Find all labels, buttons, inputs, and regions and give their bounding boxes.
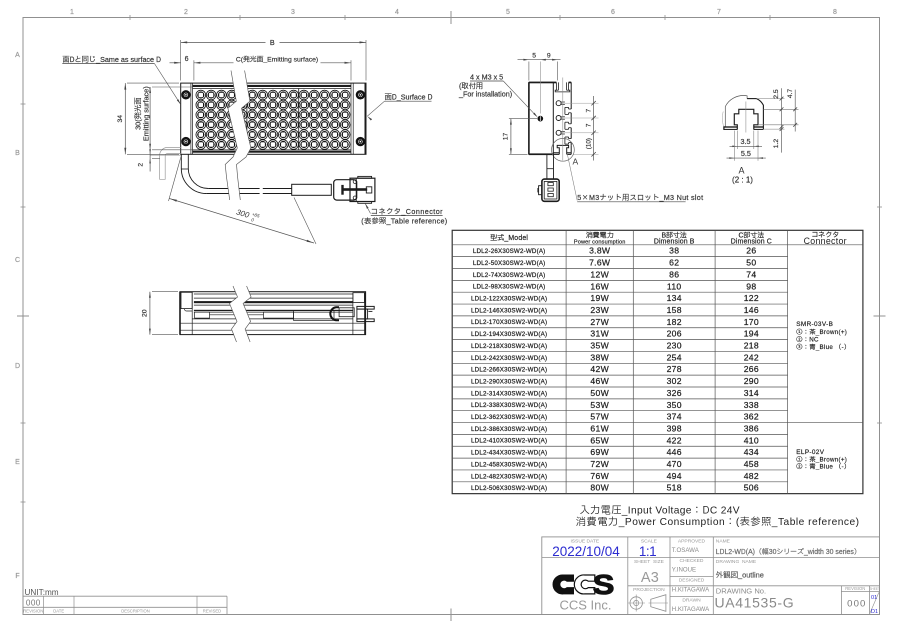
- svg-text:(10): (10): [586, 138, 593, 149]
- svg-text:UA41535-G: UA41535-G: [715, 595, 795, 611]
- svg-text:19W: 19W: [590, 293, 609, 303]
- svg-text:LDL2-74X30SW2-WD(A): LDL2-74X30SW2-WD(A): [473, 272, 546, 279]
- svg-text:LDL2-290X30SW2-WD(A): LDL2-290X30SW2-WD(A): [471, 378, 547, 385]
- svg-text:3.5: 3.5: [741, 137, 751, 146]
- svg-text:Dimension C: Dimension C: [731, 239, 772, 246]
- svg-text:消費電力_Power Consumption：(表参照_Ta: 消費電力_Power Consumption：(表参照_Table refere…: [576, 515, 860, 530]
- svg-text:5×M3ナット用スロット_M3 Nut slot: 5×M3ナット用スロット_M3 Nut slot: [577, 193, 703, 204]
- svg-text:266: 266: [744, 364, 759, 374]
- svg-text:②：青_Blue （-）: ②：青_Blue （-）: [796, 461, 850, 471]
- svg-text:LDL2-218X30SW2-WD(A): LDL2-218X30SW2-WD(A): [471, 343, 547, 350]
- svg-text:7.6W: 7.6W: [589, 258, 611, 268]
- svg-text:5.5: 5.5: [741, 149, 751, 158]
- svg-text:4: 4: [395, 9, 399, 16]
- svg-text:194: 194: [744, 329, 759, 339]
- svg-text:110: 110: [667, 281, 682, 291]
- svg-text:Emitting surface): Emitting surface): [141, 86, 150, 141]
- svg-text:410: 410: [744, 435, 759, 445]
- svg-text:7: 7: [585, 108, 592, 112]
- svg-text:326: 326: [667, 388, 682, 398]
- svg-text:T.OSAWA: T.OSAWA: [672, 547, 700, 554]
- svg-text:134: 134: [667, 293, 682, 303]
- svg-text:A3: A3: [641, 570, 659, 586]
- svg-text:2: 2: [137, 163, 144, 167]
- svg-text:DATE: DATE: [53, 609, 64, 614]
- svg-text:1: 1: [70, 9, 74, 16]
- svg-text:CCS Inc.: CCS Inc.: [559, 597, 611, 612]
- svg-text:434: 434: [744, 447, 759, 457]
- svg-text:C: C: [15, 257, 20, 264]
- svg-text:290: 290: [744, 376, 759, 386]
- svg-text:57W: 57W: [590, 412, 609, 422]
- svg-text:1.2: 1.2: [773, 139, 780, 149]
- svg-text:8: 8: [833, 9, 837, 16]
- svg-text:278: 278: [667, 364, 682, 374]
- svg-text:A: A: [738, 166, 744, 176]
- svg-text:APPROVED: APPROVED: [678, 538, 706, 544]
- svg-text:5: 5: [532, 52, 536, 59]
- svg-text:01: 01: [871, 595, 877, 601]
- svg-text:DRAWN: DRAWN: [682, 598, 701, 604]
- svg-text:23W: 23W: [590, 305, 609, 315]
- svg-text:LDL2-434X30SW2-WD(A): LDL2-434X30SW2-WD(A): [471, 450, 547, 457]
- svg-text:16W: 16W: [590, 281, 609, 291]
- svg-text:3.8W: 3.8W: [589, 246, 611, 256]
- svg-text:Y.INOUE: Y.INOUE: [672, 567, 696, 574]
- svg-text:000: 000: [26, 599, 41, 608]
- svg-text:27W: 27W: [590, 317, 609, 327]
- svg-text:6: 6: [611, 9, 615, 16]
- svg-text:362: 362: [744, 412, 759, 422]
- svg-text:LDL2-26X30SW2-WD(A): LDL2-26X30SW2-WD(A): [473, 248, 546, 255]
- svg-text:1:1: 1:1: [639, 544, 656, 559]
- svg-text:302: 302: [667, 376, 682, 386]
- svg-text:38W: 38W: [590, 352, 609, 362]
- svg-text:122: 122: [744, 293, 759, 303]
- svg-text:53W: 53W: [590, 400, 609, 410]
- svg-text:LDL2-458X30SW2-WD(A): LDL2-458X30SW2-WD(A): [471, 461, 547, 468]
- svg-text:69W: 69W: [590, 447, 609, 457]
- svg-text:Dimension B: Dimension B: [654, 239, 695, 246]
- svg-text:H.KITAGAWA: H.KITAGAWA: [672, 587, 710, 594]
- svg-text:6: 6: [185, 56, 189, 63]
- svg-text:DESCRIPTION: DESCRIPTION: [121, 609, 150, 614]
- svg-text:SHEET: SHEET: [869, 587, 880, 591]
- svg-text:482: 482: [744, 471, 759, 481]
- svg-text:170: 170: [744, 317, 759, 327]
- svg-text:LDL2-338X30SW2-WD(A): LDL2-338X30SW2-WD(A): [471, 402, 547, 409]
- svg-text:146: 146: [744, 305, 759, 315]
- svg-text:LDL2-482X30SW2-WD(A): LDL2-482X30SW2-WD(A): [471, 473, 547, 480]
- svg-text:17: 17: [502, 133, 509, 141]
- svg-text:_For installation): _For installation): [458, 90, 512, 101]
- svg-text:206: 206: [667, 329, 682, 339]
- svg-text:242: 242: [744, 352, 759, 362]
- svg-text:374: 374: [667, 412, 682, 422]
- svg-text:31W: 31W: [590, 329, 609, 339]
- svg-text:518: 518: [667, 483, 682, 493]
- svg-text:422: 422: [667, 435, 682, 445]
- svg-text:LDL2-314X30SW2-WD(A): LDL2-314X30SW2-WD(A): [471, 390, 547, 397]
- svg-text:350: 350: [667, 400, 682, 410]
- svg-text:REVISION: REVISION: [845, 586, 865, 591]
- svg-text:LDL2-WD(A)（幅30シリーズ_width 30 se: LDL2-WD(A)（幅30シリーズ_width 30 series）: [716, 548, 861, 558]
- svg-text:218: 218: [744, 341, 759, 351]
- svg-text:46W: 46W: [590, 376, 609, 386]
- svg-text:61W: 61W: [590, 423, 609, 433]
- svg-text:E: E: [15, 459, 20, 466]
- svg-text:230: 230: [667, 341, 682, 351]
- svg-text:DESIGNED: DESIGNED: [679, 578, 705, 584]
- svg-text:REVISED: REVISED: [203, 609, 221, 614]
- svg-text:LDL2-362X30SW2-WD(A): LDL2-362X30SW2-WD(A): [471, 414, 547, 421]
- svg-text:458: 458: [744, 459, 759, 469]
- svg-text:65W: 65W: [590, 435, 609, 445]
- svg-text:Connector: Connector: [804, 236, 847, 246]
- svg-text:A: A: [572, 157, 578, 167]
- svg-text:REVISION: REVISION: [23, 609, 43, 614]
- svg-text:386: 386: [744, 423, 759, 433]
- svg-text:LDL2-506X30SW2-WD(A): LDL2-506X30SW2-WD(A): [471, 485, 547, 492]
- svg-text:H.KITAGAWA: H.KITAGAWA: [672, 606, 710, 613]
- svg-text:CHECKED: CHECKED: [680, 558, 704, 564]
- svg-text:158: 158: [667, 305, 682, 315]
- svg-text:470: 470: [667, 459, 682, 469]
- svg-text:Power consumption: Power consumption: [574, 239, 626, 245]
- svg-text:SHEET SIZE: SHEET SIZE: [634, 559, 665, 565]
- svg-text:B: B: [270, 38, 275, 47]
- svg-text:(2 : 1): (2 : 1): [732, 176, 753, 185]
- svg-text:③：青_Blue （-）: ③：青_Blue （-）: [796, 342, 850, 352]
- svg-text:2.5: 2.5: [773, 89, 780, 99]
- svg-text:4.7: 4.7: [787, 89, 794, 99]
- svg-text:LDL2-386X30SW2-WD(A): LDL2-386X30SW2-WD(A): [471, 426, 547, 433]
- svg-text:LDL2-410X30SW2-WD(A): LDL2-410X30SW2-WD(A): [471, 438, 547, 445]
- svg-text:74: 74: [746, 269, 756, 279]
- svg-text:(表参照_Table reference): (表参照_Table reference): [361, 216, 447, 227]
- svg-text:3: 3: [291, 9, 295, 16]
- svg-text:35W: 35W: [590, 341, 609, 351]
- svg-text:PROJECTION: PROJECTION: [633, 587, 665, 593]
- svg-text:LDL2-50X30SW2-WD(A): LDL2-50X30SW2-WD(A): [473, 260, 546, 267]
- svg-text:D: D: [15, 363, 20, 370]
- svg-text:26: 26: [746, 246, 756, 256]
- svg-text:7: 7: [717, 9, 721, 16]
- svg-text:面Dと同じ_Same as surface D: 面Dと同じ_Same as surface D: [62, 55, 161, 66]
- svg-text:5: 5: [506, 9, 510, 16]
- svg-text:7: 7: [585, 123, 592, 127]
- svg-text:000: 000: [847, 599, 866, 610]
- svg-text:2022/10/04: 2022/10/04: [552, 544, 620, 559]
- svg-text:型式_Model: 型式_Model: [490, 234, 528, 244]
- svg-text:72W: 72W: [590, 459, 609, 469]
- svg-text:80W: 80W: [590, 483, 609, 493]
- svg-text:50W: 50W: [590, 388, 609, 398]
- svg-text:182: 182: [667, 317, 682, 327]
- svg-text:50: 50: [746, 258, 756, 268]
- svg-text:LDL2-146X30SW2-WD(A): LDL2-146X30SW2-WD(A): [471, 307, 547, 314]
- svg-text:76W: 76W: [590, 471, 609, 481]
- svg-text:LDL2-170X30SW2-WD(A): LDL2-170X30SW2-WD(A): [471, 319, 547, 326]
- svg-text:506: 506: [744, 483, 759, 493]
- svg-text:D1: D1: [871, 609, 878, 615]
- svg-text:42W: 42W: [590, 364, 609, 374]
- svg-text:UNIT:mm: UNIT:mm: [25, 588, 59, 597]
- svg-text:LDL2-242X30SW2-WD(A): LDL2-242X30SW2-WD(A): [471, 355, 547, 362]
- svg-text:38: 38: [669, 246, 679, 256]
- svg-text:DRAWING NAME: DRAWING NAME: [716, 559, 757, 565]
- svg-text:B: B: [15, 150, 20, 157]
- svg-text:398: 398: [667, 423, 682, 433]
- svg-text:20: 20: [142, 309, 149, 317]
- svg-text:S: S: [593, 570, 615, 600]
- svg-text:LDL2-266X30SW2-WD(A): LDL2-266X30SW2-WD(A): [471, 367, 547, 374]
- svg-text:338: 338: [744, 400, 759, 410]
- svg-text:9: 9: [547, 52, 551, 59]
- svg-text:LDL2-122X30SW2-WD(A): LDL2-122X30SW2-WD(A): [471, 296, 547, 303]
- svg-text:314: 314: [744, 388, 759, 398]
- svg-text:494: 494: [667, 471, 682, 481]
- svg-text:外観図_outline: 外観図_outline: [716, 571, 764, 582]
- svg-text:86: 86: [669, 269, 679, 279]
- svg-text:446: 446: [667, 447, 682, 457]
- svg-text:254: 254: [667, 352, 682, 362]
- svg-text:F: F: [15, 573, 19, 580]
- svg-text:A: A: [15, 52, 20, 59]
- svg-text:62: 62: [669, 258, 679, 268]
- svg-text:面D_Surface D: 面D_Surface D: [385, 93, 433, 104]
- svg-text:LDL2-98X30SW2-WD(A): LDL2-98X30SW2-WD(A): [473, 284, 546, 291]
- svg-text:2: 2: [184, 9, 188, 16]
- svg-text:NAME: NAME: [716, 538, 731, 544]
- svg-text:LDL2-194X30SW2-WD(A): LDL2-194X30SW2-WD(A): [471, 331, 547, 338]
- svg-text:34: 34: [117, 115, 124, 123]
- svg-text:12W: 12W: [590, 269, 609, 279]
- svg-text:98: 98: [746, 281, 756, 291]
- svg-text:C(発光面_Emitting surface): C(発光面_Emitting surface): [236, 54, 318, 64]
